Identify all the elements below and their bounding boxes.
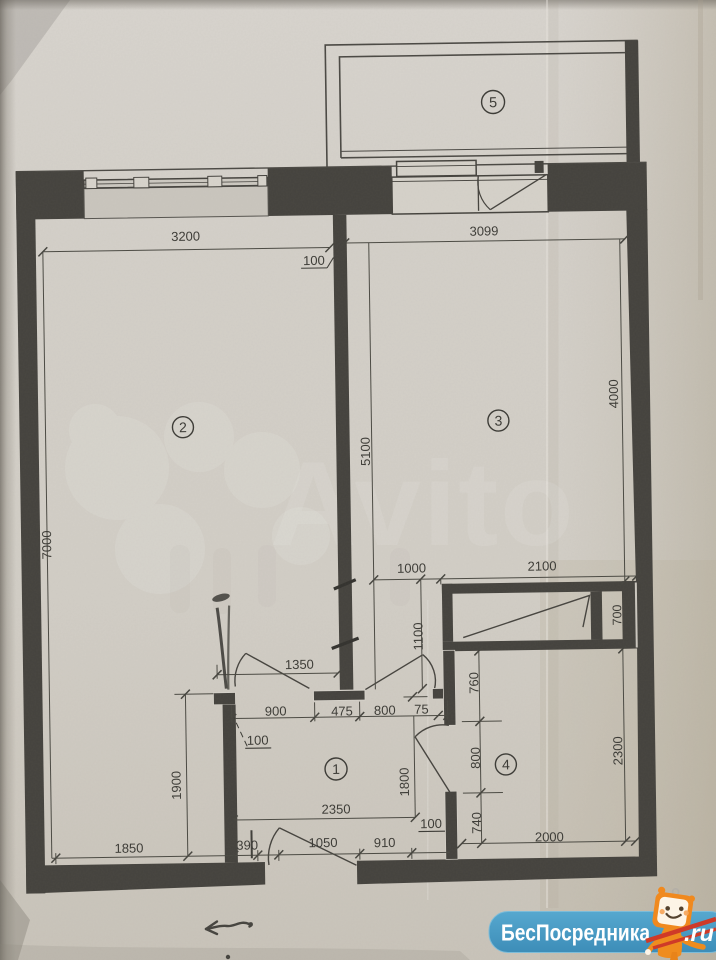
svg-text:.ru: .ru: [684, 920, 714, 946]
svg-text:БесПосредника: БесПосредника: [501, 920, 651, 946]
